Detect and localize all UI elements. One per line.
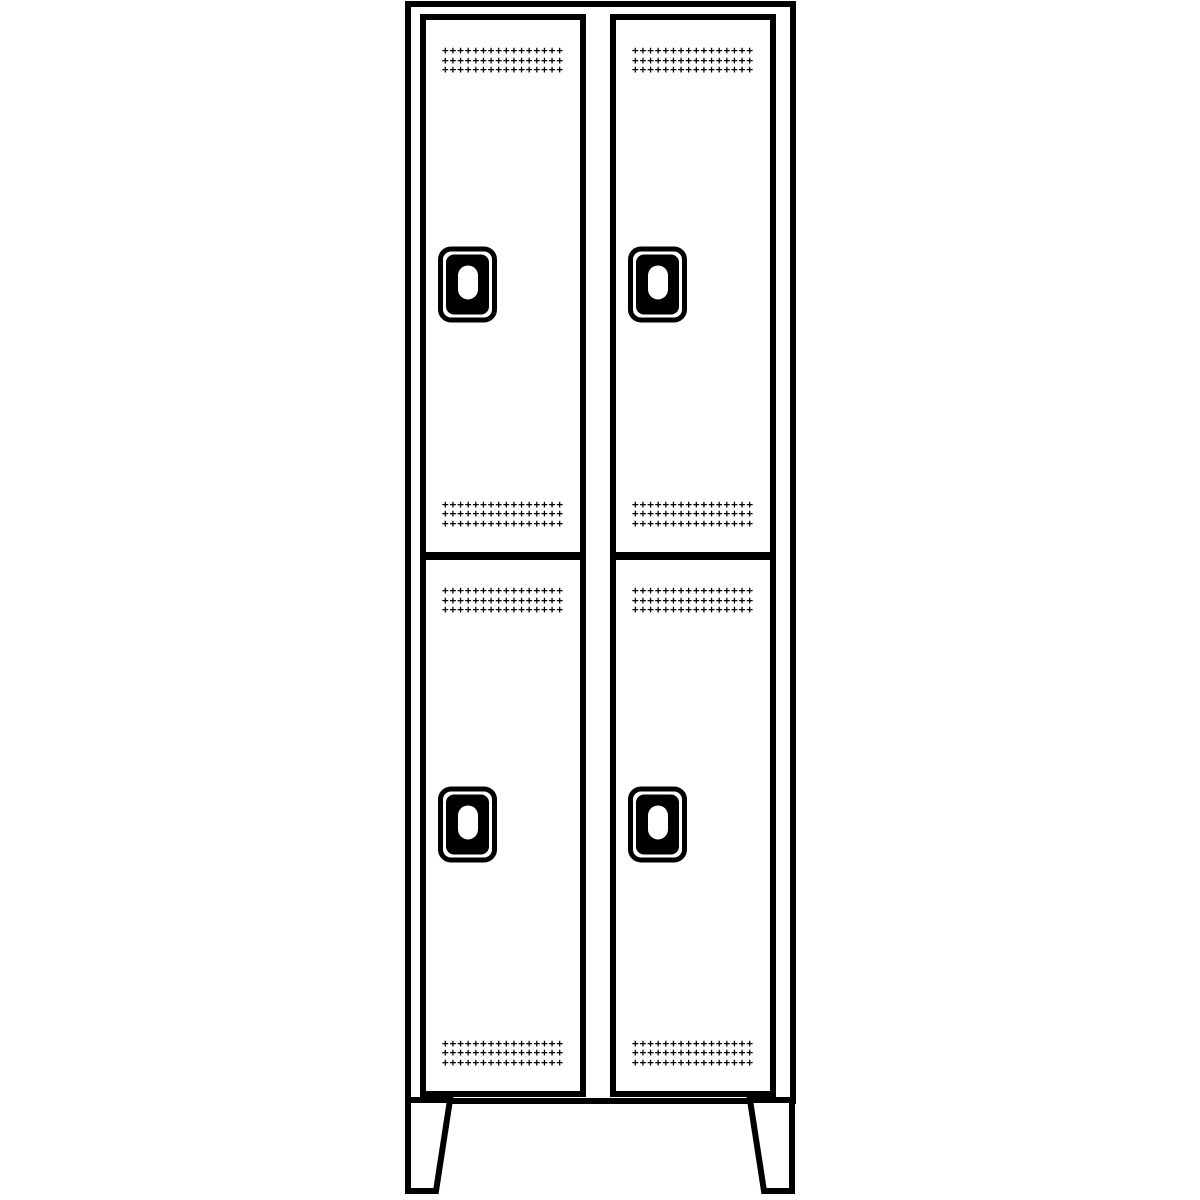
handle-recess — [446, 254, 489, 314]
handle-recess — [446, 794, 489, 854]
handle-keyhole-slot — [458, 805, 478, 839]
vent-perforation-bottom: ++++++++++++++++++++++++++++++++++++++++… — [632, 500, 754, 529]
door-bottom-left: ++++++++++++++++++++++++++++++++++++++++… — [420, 554, 586, 1097]
handle-keyhole-slot — [648, 805, 668, 839]
door-top-right: ++++++++++++++++++++++++++++++++++++++++… — [610, 14, 776, 558]
door-handle — [628, 246, 687, 322]
vent-perforation-top: ++++++++++++++++++++++++++++++++++++++++… — [442, 46, 564, 75]
vent-perforation-top: ++++++++++++++++++++++++++++++++++++++++… — [632, 46, 754, 75]
left-foot — [408, 1100, 450, 1191]
handle-keyhole-slot — [648, 265, 668, 299]
door-bottom-right: ++++++++++++++++++++++++++++++++++++++++… — [610, 554, 776, 1097]
vent-perforation-bottom: ++++++++++++++++++++++++++++++++++++++++… — [442, 500, 564, 529]
feet-layer — [0, 0, 1200, 1200]
door-handle — [628, 786, 687, 862]
handle-recess — [636, 794, 679, 854]
vent-perforation-top: ++++++++++++++++++++++++++++++++++++++++… — [632, 586, 754, 615]
vent-perforation-bottom: ++++++++++++++++++++++++++++++++++++++++… — [632, 1039, 754, 1068]
door-handle — [438, 786, 497, 862]
vent-perforation-top: ++++++++++++++++++++++++++++++++++++++++… — [442, 586, 564, 615]
right-foot — [750, 1100, 792, 1191]
handle-recess — [636, 254, 679, 314]
door-handle — [438, 246, 497, 322]
door-top-left: ++++++++++++++++++++++++++++++++++++++++… — [420, 14, 586, 558]
vent-perforation-bottom: ++++++++++++++++++++++++++++++++++++++++… — [442, 1039, 564, 1068]
locker-line-drawing: ++++++++++++++++++++++++++++++++++++++++… — [0, 0, 1200, 1200]
handle-keyhole-slot — [458, 265, 478, 299]
